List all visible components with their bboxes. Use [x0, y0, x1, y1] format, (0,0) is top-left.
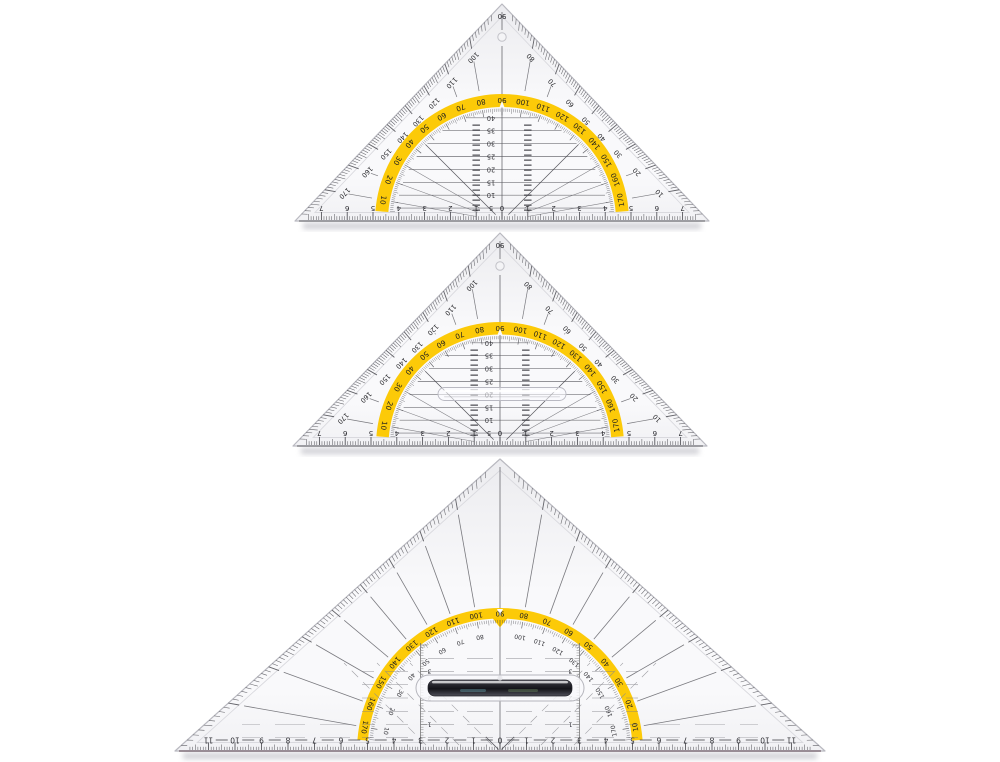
set-square-large: 1701601501401301201101009080706050403020…	[175, 459, 825, 759]
svg-text:2: 2	[444, 736, 449, 745]
hanging-hole	[498, 33, 506, 41]
svg-text:9: 9	[736, 736, 741, 745]
svg-text:1: 1	[526, 204, 531, 213]
svg-text:1: 1	[524, 736, 529, 745]
svg-text:5: 5	[369, 429, 374, 438]
handle	[438, 388, 566, 401]
svg-text:10: 10	[382, 726, 390, 735]
svg-text:5: 5	[627, 429, 632, 438]
svg-text:6: 6	[338, 736, 343, 745]
svg-text:0: 0	[499, 204, 504, 213]
svg-text:2: 2	[549, 429, 554, 438]
handle-pivot	[497, 675, 502, 680]
svg-text:15: 15	[485, 403, 493, 411]
svg-text:35: 35	[487, 127, 495, 135]
svg-text:6: 6	[342, 429, 347, 438]
svg-text:30: 30	[485, 365, 493, 373]
svg-text:90: 90	[496, 609, 505, 617]
drop-shadow	[301, 448, 699, 454]
svg-text:3: 3	[577, 736, 582, 745]
drop-shadow	[183, 753, 817, 759]
svg-text:3: 3	[422, 204, 427, 213]
svg-text:4: 4	[603, 736, 608, 745]
svg-text:10: 10	[760, 736, 770, 745]
handle-bar	[438, 388, 566, 401]
svg-text:4: 4	[600, 429, 605, 438]
svg-text:8: 8	[285, 736, 290, 745]
svg-text:3: 3	[577, 204, 582, 213]
svg-text:7: 7	[683, 736, 688, 745]
svg-text:6: 6	[654, 204, 659, 213]
svg-text:90: 90	[497, 96, 507, 105]
svg-text:7: 7	[678, 429, 683, 438]
svg-text:4: 4	[396, 204, 401, 213]
svg-text:0: 0	[497, 736, 502, 745]
hanging-hole	[496, 262, 504, 270]
drop-shadow	[303, 223, 701, 229]
svg-text:7: 7	[317, 429, 322, 438]
svg-text:6: 6	[656, 736, 661, 745]
svg-text:5: 5	[371, 204, 376, 213]
svg-text:4: 4	[394, 429, 399, 438]
svg-text:2: 2	[551, 204, 556, 213]
svg-text:2: 2	[448, 204, 453, 213]
svg-text:2: 2	[446, 429, 451, 438]
svg-text:1: 1	[524, 429, 529, 438]
svg-text:80: 80	[475, 633, 484, 641]
svg-text:7: 7	[319, 204, 324, 213]
svg-text:11: 11	[787, 736, 797, 745]
set-square-middle: 1701601501401301201101008070605040302010…	[293, 233, 707, 454]
svg-text:4: 4	[602, 204, 607, 213]
svg-text:6: 6	[652, 429, 657, 438]
svg-text:3: 3	[420, 429, 425, 438]
svg-text:30: 30	[487, 140, 495, 148]
set-square-top: 1701601501401301201101008070605040302010…	[295, 4, 709, 229]
svg-text:10: 10	[487, 191, 495, 199]
svg-text:1: 1	[472, 429, 477, 438]
svg-text:3: 3	[575, 429, 580, 438]
svg-text:11: 11	[204, 736, 214, 745]
svg-text:3: 3	[418, 736, 423, 745]
svg-text:2: 2	[550, 736, 555, 745]
svg-text:40: 40	[485, 339, 493, 347]
product-photo: Three transparent Geodreieck set squares…	[0, 0, 1000, 762]
svg-text:10: 10	[230, 736, 240, 745]
svg-text:90: 90	[495, 324, 505, 333]
svg-text:10: 10	[485, 416, 493, 424]
svg-text:1: 1	[471, 736, 476, 745]
svg-text:10: 10	[631, 722, 640, 732]
svg-text:5: 5	[629, 204, 634, 213]
svg-text:6: 6	[344, 204, 349, 213]
handle	[416, 675, 584, 701]
svg-text:25: 25	[485, 378, 493, 386]
svg-text:25: 25	[487, 153, 495, 161]
svg-text:8: 8	[709, 736, 714, 745]
svg-text:5: 5	[365, 736, 370, 745]
set-squares-illustration: 1701601501401301201101008070605040302010…	[0, 0, 1000, 762]
svg-text:35: 35	[485, 352, 493, 360]
svg-text:7: 7	[680, 204, 685, 213]
svg-text:5: 5	[630, 736, 635, 745]
svg-text:80: 80	[519, 611, 529, 620]
svg-text:4: 4	[391, 736, 396, 745]
svg-text:20: 20	[487, 165, 495, 173]
svg-text:0: 0	[497, 429, 502, 438]
svg-text:9: 9	[259, 736, 264, 745]
svg-text:40: 40	[487, 114, 495, 122]
svg-text:15: 15	[487, 178, 495, 186]
svg-text:7: 7	[312, 736, 317, 745]
svg-text:1: 1	[474, 204, 479, 213]
